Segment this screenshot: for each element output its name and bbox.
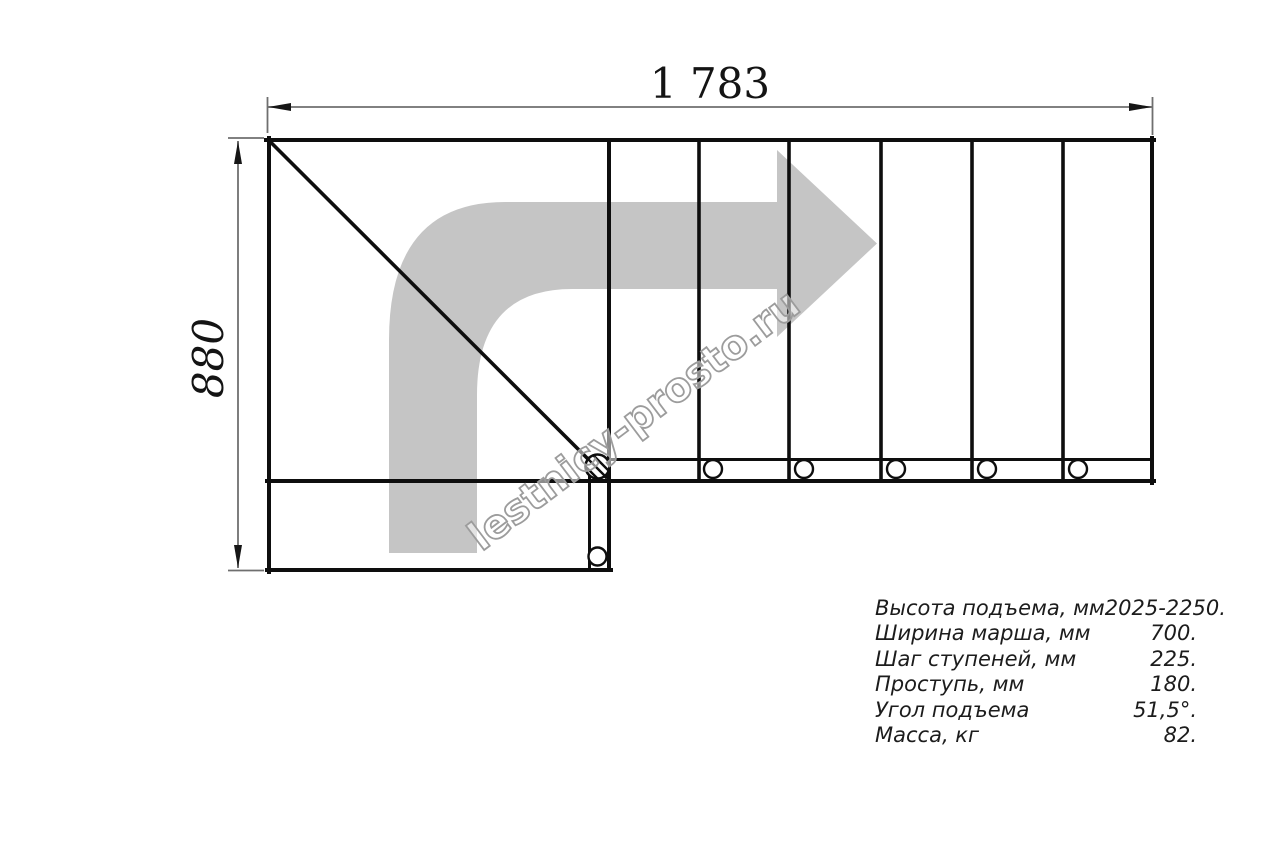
width-arrowhead-right <box>1129 103 1152 111</box>
spec-row-climb-angle: Угол подъема 51,5°. <box>875 698 1197 723</box>
spec-label: Шаг ступеней, мм <box>875 647 1076 672</box>
spec-row-tread-depth: Проступь, мм 180. <box>875 672 1197 697</box>
spec-value: 700. <box>1150 621 1197 646</box>
height-arrowhead-top <box>234 141 242 164</box>
landing-bolt-circle <box>589 548 607 566</box>
spec-row-step-pitch: Шаг ступеней, мм 225. <box>875 647 1197 672</box>
watermark-text: lestnicy-prosto.ru <box>460 281 809 560</box>
spec-label: Масса, кг <box>875 723 979 748</box>
spec-value: 2025-2250. <box>1105 596 1226 621</box>
spec-label: Проступь, мм <box>875 672 1024 697</box>
spec-value: 180. <box>1150 672 1197 697</box>
dimension-height: 880 <box>184 138 264 571</box>
bolt-circle-1 <box>704 460 722 478</box>
dimension-width: 1 783 <box>268 59 1153 135</box>
width-dimension-label: 1 783 <box>650 59 770 108</box>
spec-value: 225. <box>1150 647 1197 672</box>
bolt-circle-2 <box>795 460 813 478</box>
spec-value: 51,5°. <box>1133 698 1197 723</box>
height-arrowhead-bottom <box>234 545 242 568</box>
width-arrowhead-left <box>268 103 291 111</box>
spec-row-lift-height: Высота подъема, мм 2025-2250. <box>875 596 1197 621</box>
spec-row-mass: Масса, кг 82. <box>875 723 1197 748</box>
bolt-circle-5 <box>1069 460 1087 478</box>
bolt-circle-4 <box>978 460 996 478</box>
spec-label: Угол подъема <box>875 698 1029 723</box>
spec-row-flight-width: Ширина марша, мм 700. <box>875 621 1197 646</box>
walk-direction-arrow <box>389 150 877 553</box>
staircase-plan-drawing: 1 783 880 lestnicy-prosto.ru Высота подъ… <box>0 0 1280 853</box>
spec-label: Высота подъема, мм <box>875 596 1105 621</box>
spec-label: Ширина марша, мм <box>875 621 1091 646</box>
bolt-circle-3 <box>887 460 905 478</box>
specs-table: Высота подъема, мм 2025-2250. Ширина мар… <box>875 596 1197 748</box>
spec-value: 82. <box>1164 723 1197 748</box>
height-dimension-label: 880 <box>184 318 233 398</box>
